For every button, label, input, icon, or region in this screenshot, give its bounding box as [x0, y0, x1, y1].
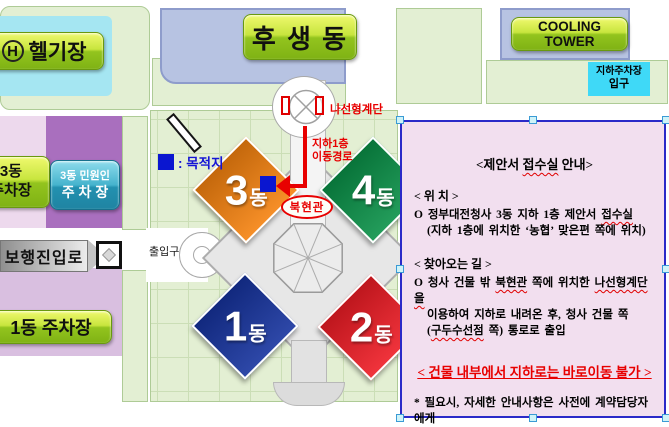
info-textbox[interactable]: <제안서 접수실 안내>< 위 치 >O 정부대전청사 3동 지하 1층 제안서…	[400, 120, 666, 418]
north-hall-badge: 북현관	[281, 195, 333, 219]
text-segment: 안내>	[558, 157, 593, 172]
text-segment: 이용하여 지하로 내려온 후, 청사 건물 쪽	[427, 309, 628, 321]
text-segment: 구두수선점	[431, 325, 484, 337]
building-4-suffix: 동	[376, 181, 394, 210]
map-block-green	[122, 270, 148, 402]
building-2-suffix: 동	[374, 318, 392, 347]
building-2-number: 2	[350, 306, 373, 348]
route-line-horizontal	[289, 184, 307, 188]
text-segment: 쪽에 위치한	[527, 277, 595, 289]
underground-parking-line1: 지하주차장	[588, 66, 650, 79]
destination-legend-label: : 목적지	[178, 152, 224, 172]
building-1-suffix: 동	[248, 317, 266, 346]
text-segment: 접수실	[601, 209, 633, 221]
south-dome	[273, 382, 345, 406]
infobox-line: (구두수선점 쪽) 통로로 출입	[414, 323, 655, 339]
text-segment: <제안서	[476, 157, 523, 172]
text-segment: 쪽) 통로로 출입	[484, 325, 566, 337]
text-segment: 북현관	[495, 277, 527, 289]
building-4-label: 4동	[352, 169, 395, 211]
infobox-line: < 건물 내부에서 지하로는 바로이동 불가 >	[414, 361, 655, 381]
resize-handle-mid-right[interactable]	[662, 265, 669, 273]
infobox-line: 이용하여 지하로 내려온 후, 청사 건물 쪽	[414, 307, 655, 323]
text-segment: 접수실	[523, 157, 559, 172]
route-label: 지하1층 이동경로	[312, 138, 352, 163]
heliport-label-text: 헬기장	[29, 36, 87, 66]
map-block-green	[396, 8, 482, 104]
route-label-line1: 지하1층	[312, 138, 352, 151]
text-segment: < 건물 내부에서 지하로는 바로이동 불가 >	[417, 365, 651, 380]
infobox-line: <제안서 접수실 안내>	[414, 154, 655, 173]
civil-parking-line2: 주 차 장	[62, 183, 108, 201]
husaeng-label: 후 생 동	[243, 14, 357, 60]
destination-legend-icon	[158, 154, 174, 170]
spacer	[414, 386, 655, 395]
destination-marker	[260, 176, 276, 192]
building-2-label: 2동	[350, 306, 393, 348]
parking-3dong-label: 3동 주차장	[0, 156, 50, 208]
stair-marker-right	[315, 96, 324, 115]
parking-3dong-line2: 주차장	[0, 182, 32, 201]
infobox-line: * 필요시, 자세한 안내사항은 사전에 계약담당자에게	[414, 395, 655, 427]
infobox-line: O 청사 건물 밖 북현관 쪽에 위치한 나선형계단을	[414, 275, 655, 307]
pedestrian-entry-banner: 보행진입로	[0, 240, 88, 272]
resize-handle-top-right[interactable]	[662, 116, 669, 124]
resize-handle-bottom-center[interactable]	[529, 414, 537, 422]
destination-legend: : 목적지	[158, 152, 224, 172]
infobox-line: < 위 치 >	[414, 187, 655, 204]
underground-parking-line2: 입구	[588, 78, 650, 92]
stair-marker-left	[281, 96, 290, 115]
resize-handle-mid-left[interactable]	[396, 265, 404, 273]
route-arrow-icon	[276, 175, 290, 197]
infobox-line: O 정부대전청사 3동 지하 1층 제안서 접수실	[414, 207, 655, 223]
entry-point-diamond-icon	[102, 248, 116, 262]
infobox-line: < 찾아오는 길 >	[414, 255, 655, 272]
resize-handle-bottom-right[interactable]	[662, 414, 669, 422]
building-1-number: 1	[224, 305, 247, 347]
building-1-label: 1동	[224, 305, 267, 347]
building-3-number: 3	[225, 169, 248, 211]
civil-parking-line1: 3동 민원인	[60, 169, 110, 183]
parking-3dong-line1: 3동	[0, 163, 22, 182]
underground-parking-label: 지하주차장 입구	[588, 62, 650, 96]
central-octagon	[270, 220, 346, 296]
route-label-line2: 이동경로	[312, 151, 352, 164]
resize-handle-top-center[interactable]	[529, 116, 537, 124]
heliport-label: H 헬기장	[0, 32, 104, 70]
text-segment: O 청사 건물 밖	[414, 277, 495, 289]
heliport-h-icon: H	[2, 40, 24, 62]
civil-parking-label: 3동 민원인 주 차 장	[50, 160, 120, 210]
spiral-staircase-label: 나선형계단	[330, 101, 383, 117]
infobox-content: <제안서 접수실 안내>< 위 치 >O 정부대전청사 3동 지하 1층 제안서…	[414, 154, 655, 427]
text-segment: O 정부대전청사 3동 지하 1층 제안서	[414, 209, 601, 221]
gate-label: 출입구	[149, 243, 179, 259]
resize-handle-top-left[interactable]	[396, 116, 404, 124]
map-block-green	[122, 116, 148, 230]
spacer	[414, 339, 655, 348]
route-line-vertical	[303, 126, 307, 188]
text-segment: < 위 치 >	[414, 189, 459, 203]
spacer	[414, 239, 655, 248]
building-4-number: 4	[352, 169, 375, 211]
resize-handle-bottom-left[interactable]	[396, 414, 404, 422]
text-segment: < 찾아오는 길 >	[414, 257, 492, 271]
cooling-tower-label: COOLING TOWER	[511, 17, 628, 51]
south-tower	[291, 340, 327, 384]
entry-point-marker	[96, 241, 122, 269]
parking-1dong-label: 1동 주차장	[0, 310, 112, 344]
text-segment: (지하 1층에 위치한 ‘농협’ 맞은편 쪽에 위치)	[427, 225, 646, 237]
infobox-line: (지하 1층에 위치한 ‘농협’ 맞은편 쪽에 위치)	[414, 223, 655, 239]
site-map: 출입구 나선형계단 3동 4동 1동 2동 북현관	[0, 0, 669, 427]
